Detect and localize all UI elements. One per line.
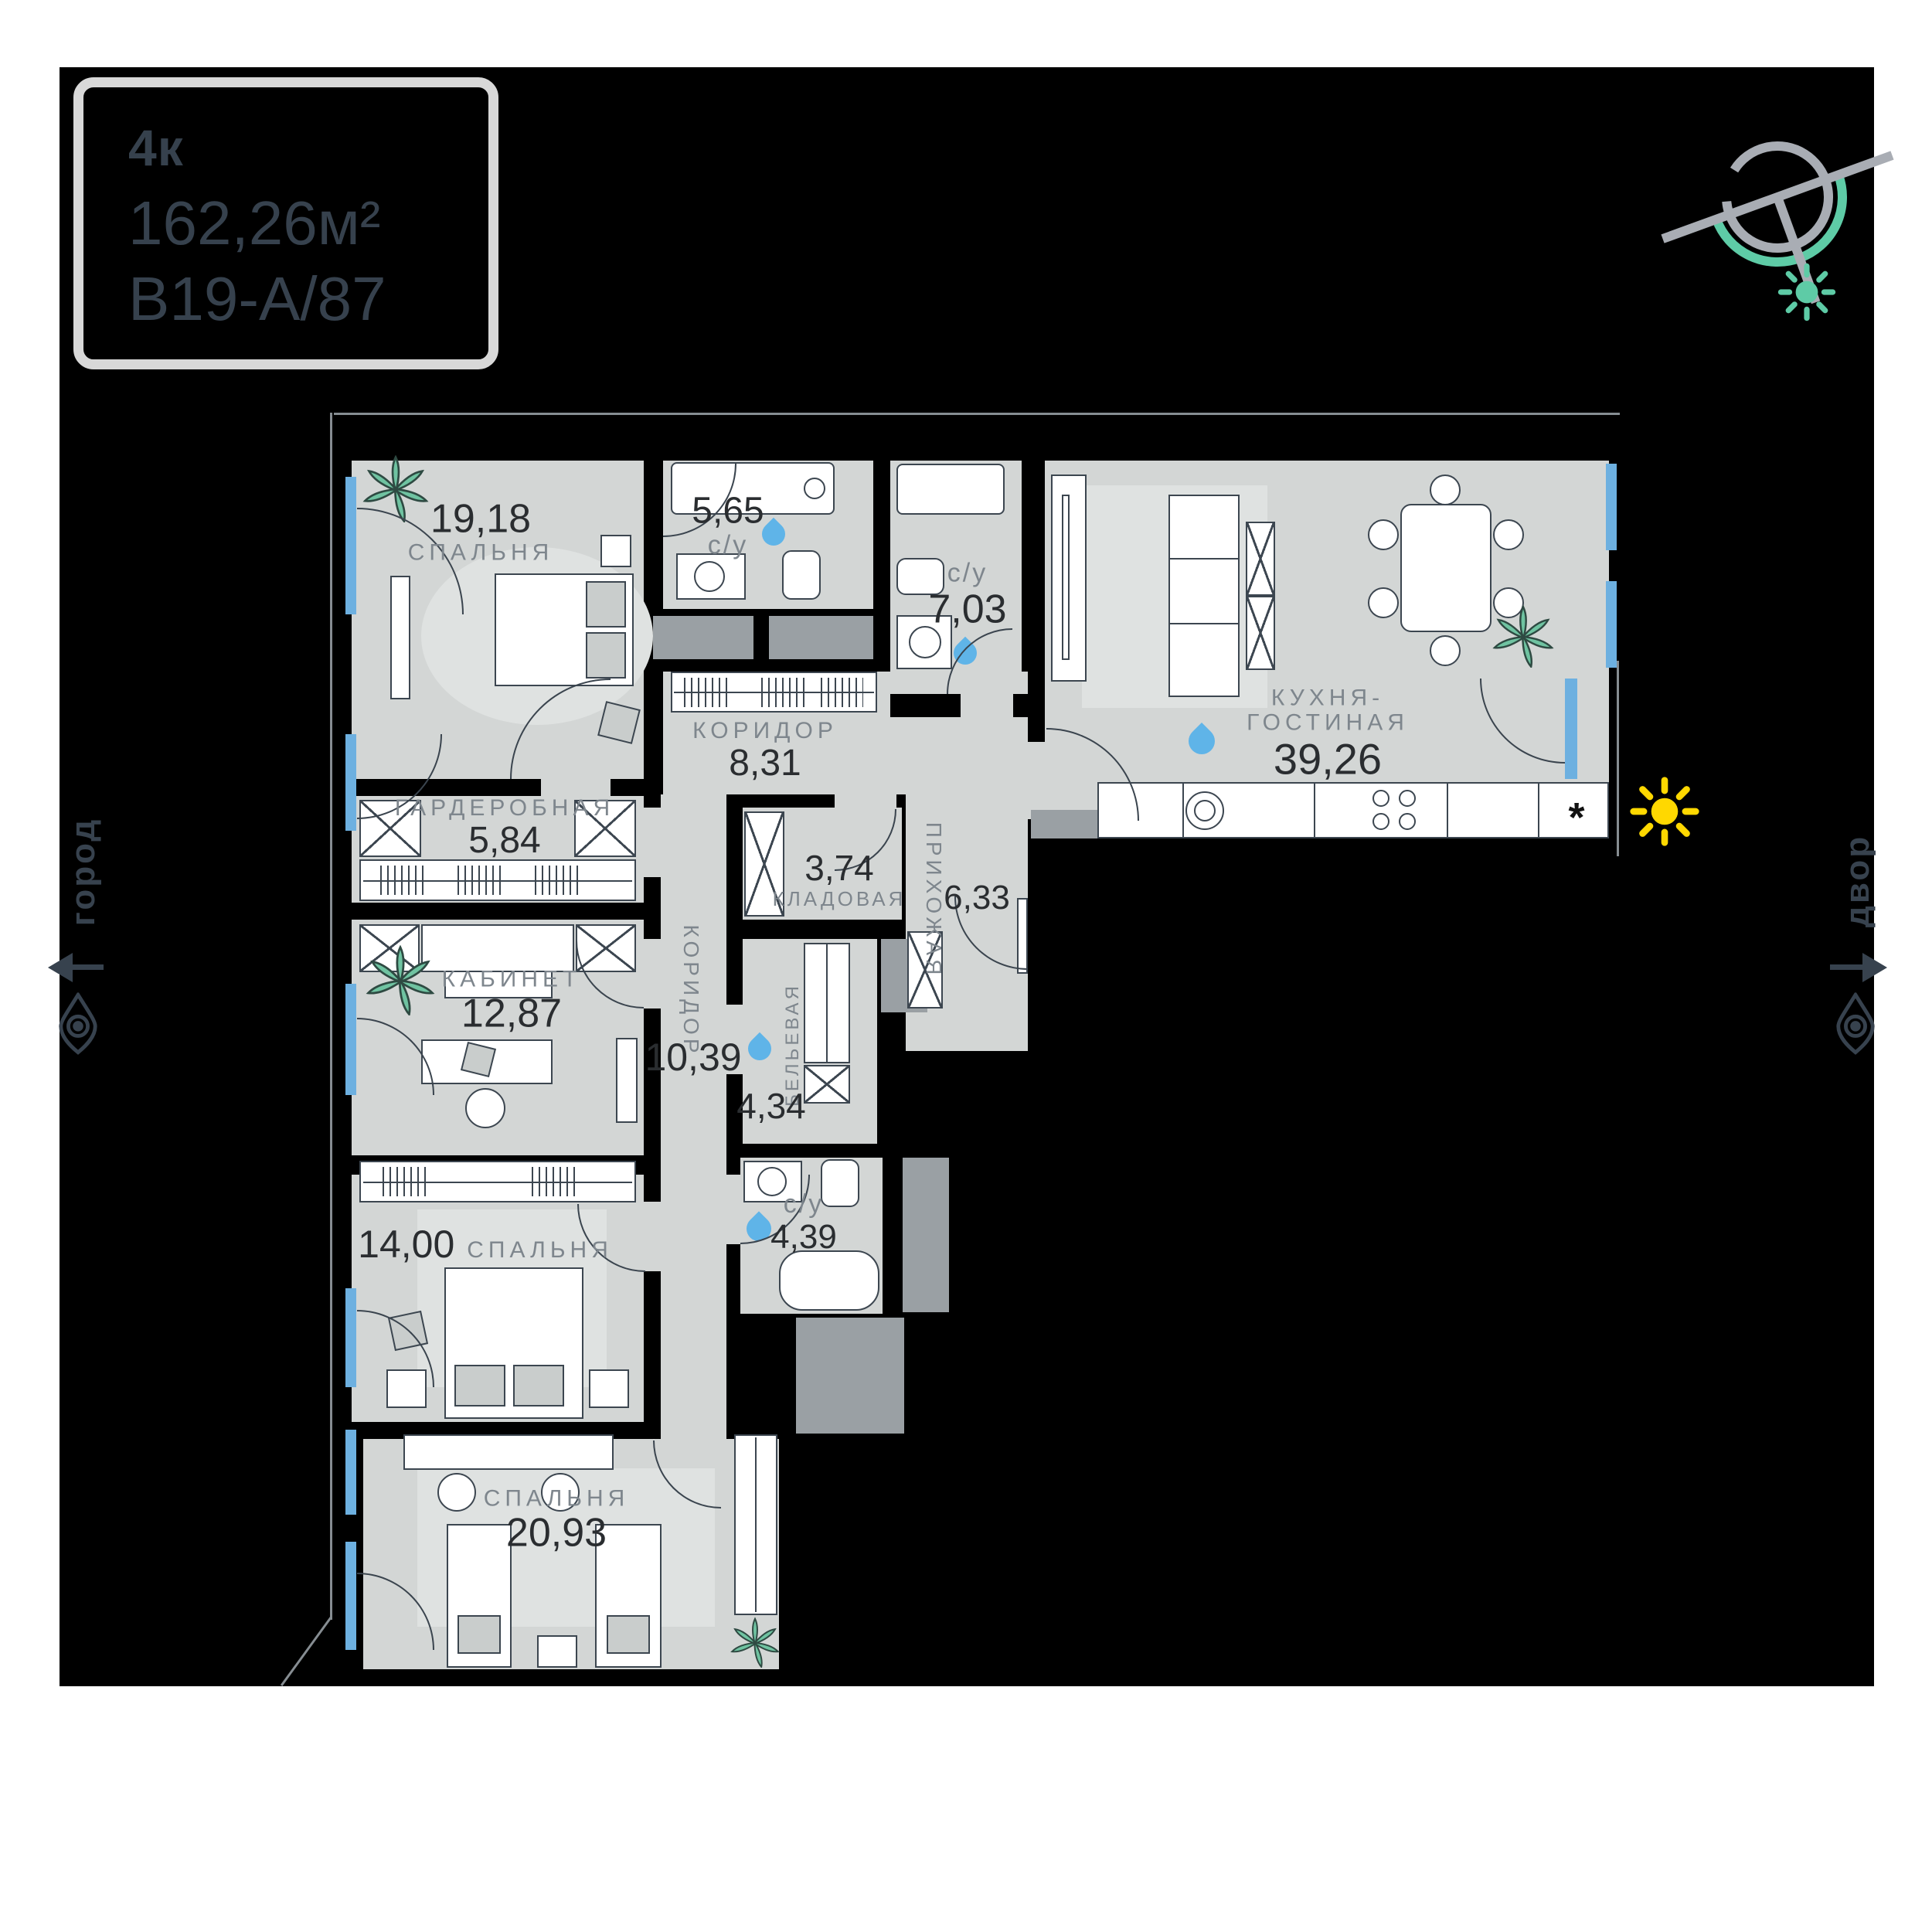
label-bedroom-2: 14,00 СПАЛЬНЯ [358, 1223, 613, 1265]
counter-divider [1538, 782, 1539, 838]
shaft [903, 1158, 949, 1312]
balcony-door [1565, 679, 1577, 779]
label-bedroom-1: 19,18 СПАЛЬНЯ [408, 498, 554, 566]
window [1606, 464, 1617, 550]
window [345, 1430, 356, 1515]
bathtub [896, 464, 1005, 515]
fridge-symbol: * [1568, 794, 1584, 842]
opening [726, 1175, 742, 1244]
label-bathroom-2: с/у 7,03 [928, 560, 1006, 631]
hob-burner [1399, 813, 1416, 830]
closet-hangers [761, 678, 808, 707]
pillow [586, 581, 626, 628]
label-storage: 3,74 КЛАДОВАЯ [773, 849, 906, 910]
pillow [454, 1365, 505, 1406]
hall-wardrobe-mirror [1062, 495, 1070, 660]
shaft [769, 616, 873, 659]
nightstand [589, 1369, 629, 1408]
label-hallway-area: 6,33 [944, 879, 1010, 917]
label-linen-area: 4,34 [736, 1087, 806, 1126]
sofa [1168, 495, 1240, 697]
linen-rail [826, 944, 828, 1062]
label-hallway-name: ПРИХОЖАЯ [922, 822, 945, 979]
window [345, 1288, 356, 1387]
label-bedroom-3: СПАЛЬНЯ 20,93 [484, 1487, 630, 1556]
plant-icon [365, 944, 436, 1015]
unit-rooms-count: 4к [128, 118, 386, 177]
window [345, 477, 356, 614]
closet-hangers [457, 866, 502, 895]
nightstand [537, 1635, 577, 1668]
closet-hangers [383, 1167, 427, 1196]
desk-chair [437, 1473, 476, 1512]
shaft [796, 1318, 904, 1434]
closet-hangers [532, 1167, 577, 1196]
opening [644, 939, 663, 1009]
shelf-unit [1246, 522, 1275, 596]
facade-line-right [1617, 661, 1619, 856]
label-corridor-2-area: 10,39 [645, 1036, 741, 1078]
palm-plant-icon [730, 1617, 781, 1668]
washing-machine [804, 1065, 850, 1104]
label-bathroom-3: с/у 4,39 [770, 1190, 837, 1255]
kitchen-counter [1097, 782, 1609, 838]
city-eye-icon [56, 992, 100, 1056]
unit-info-card: 4к 162,26м² B19-А/87 [73, 77, 498, 369]
wardrobe-rail [755, 1437, 757, 1612]
sofa-seat-line [1168, 623, 1240, 624]
counter-divider [1182, 782, 1184, 838]
chair [1493, 519, 1524, 550]
counter-divider [1314, 782, 1315, 838]
city-direction-label: город [65, 818, 102, 927]
label-wardrobe: ГАРДЕРОБНАЯ 5,84 [395, 796, 614, 861]
office-sofa [421, 924, 574, 972]
sun-yellow-icon [1628, 774, 1702, 849]
closet-hangers [684, 678, 730, 707]
closet-hangers [380, 866, 425, 895]
label-corridor-1: КОРИДОР 8,31 [692, 719, 838, 784]
corridor-mirror [616, 1038, 638, 1123]
hob-burner [1372, 790, 1389, 807]
sun-small-teal-icon [1776, 261, 1838, 323]
bathtub-drain [804, 478, 825, 499]
opening [644, 1202, 663, 1271]
yard-direction-label: двор [1839, 835, 1876, 927]
kitchen-sink-icon-inner [1194, 800, 1216, 821]
city-arrow-line [71, 964, 104, 970]
city-arrow-head-icon [48, 953, 73, 982]
pillow [513, 1365, 564, 1406]
opening [961, 694, 1013, 717]
counter-divider [1447, 782, 1448, 838]
chair [1368, 519, 1399, 550]
facade-line-top [334, 413, 1620, 415]
pillow [607, 1615, 650, 1654]
hob-burner [1399, 790, 1416, 807]
window [345, 1542, 356, 1650]
closet-hangers [821, 678, 863, 707]
dining-table [1400, 504, 1492, 632]
yard-arrow-head-icon [1862, 953, 1887, 982]
hob-burner [1372, 813, 1389, 830]
nightstand [600, 535, 631, 567]
window [1606, 581, 1617, 668]
opening [835, 794, 896, 809]
facade-line-left [330, 413, 332, 1620]
yard-arrow-line [1830, 964, 1862, 970]
window [345, 984, 356, 1095]
floorplan-page: 4к 162,26м² B19-А/87 город двор [0, 0, 1932, 1932]
closet-hangers [535, 866, 580, 895]
chair [1368, 587, 1399, 618]
desk-chair [465, 1088, 505, 1128]
plant-icon [1492, 604, 1555, 668]
sofa-seat-line [1168, 558, 1240, 560]
shaft [653, 616, 753, 659]
window [345, 734, 356, 831]
yard-eye-icon [1833, 992, 1878, 1056]
opening [1028, 742, 1046, 819]
shelf-unit [1246, 596, 1275, 670]
label-kitchen-living: КУХНЯ- ГОСТИНАЯ 39,26 [1247, 685, 1409, 782]
label-office: КАБИНЕТ 12,87 [442, 968, 582, 1036]
desk-long [403, 1434, 614, 1470]
toilet [782, 550, 821, 600]
bathtub [779, 1250, 879, 1311]
pillow [457, 1615, 501, 1654]
opening [644, 808, 663, 877]
sink-bowl [694, 561, 725, 592]
chair [1430, 635, 1461, 666]
unit-code: B19-А/87 [128, 264, 386, 335]
pillow [586, 632, 626, 679]
label-bathroom-1: 5,65 с/у [692, 492, 764, 560]
room-corridor-2 [661, 794, 726, 1439]
unit-area: 162,26м² [128, 188, 386, 259]
chair [1430, 474, 1461, 505]
